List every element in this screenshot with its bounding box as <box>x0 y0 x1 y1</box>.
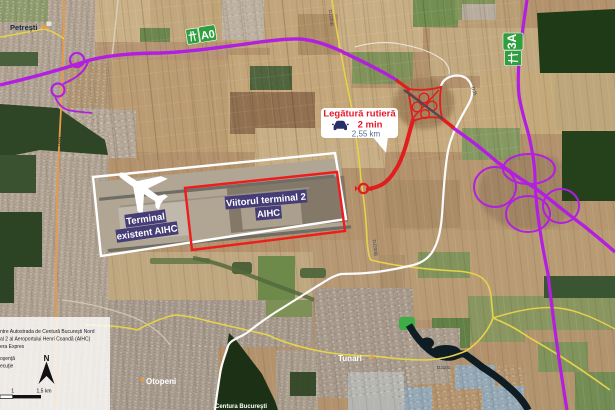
svg-text:era Expres: era Expres <box>0 344 25 350</box>
svg-text:ecuţie: ecuţie <box>0 364 14 370</box>
svg-text:N: N <box>44 354 50 363</box>
svg-text:oşenţă: oşenţă <box>0 356 15 362</box>
svg-text:Petreşti: Petreşti <box>10 23 38 32</box>
svg-text:DJ101: DJ101 <box>437 365 451 370</box>
svg-text:1,5 km: 1,5 km <box>36 389 51 395</box>
svg-text:2,55 km: 2,55 km <box>352 130 381 139</box>
svg-text:Centura Bucureşti: Centura Bucureşti <box>215 404 267 410</box>
svg-text:Legătură rutieră: Legătură rutieră <box>323 109 396 120</box>
svg-text:A0: A0 <box>200 28 216 42</box>
svg-text:al 2 al Aeroportului Henri Coa: al 2 al Aeroportului Henri Coandă (AIHC) <box>0 337 91 343</box>
svg-text:Tunari: Tunari <box>338 354 362 363</box>
svg-text:ntre Autostrada de Centură Buc: ntre Autostrada de Centură Bucureşti Nor… <box>0 329 95 335</box>
svg-text:Otopeni: Otopeni <box>146 377 176 386</box>
svg-text:1: 1 <box>11 389 14 395</box>
svg-text:DN1: DN1 <box>55 137 62 148</box>
svg-text:AIHC: AIHC <box>257 207 281 220</box>
svg-text:3A: 3A <box>505 33 519 49</box>
